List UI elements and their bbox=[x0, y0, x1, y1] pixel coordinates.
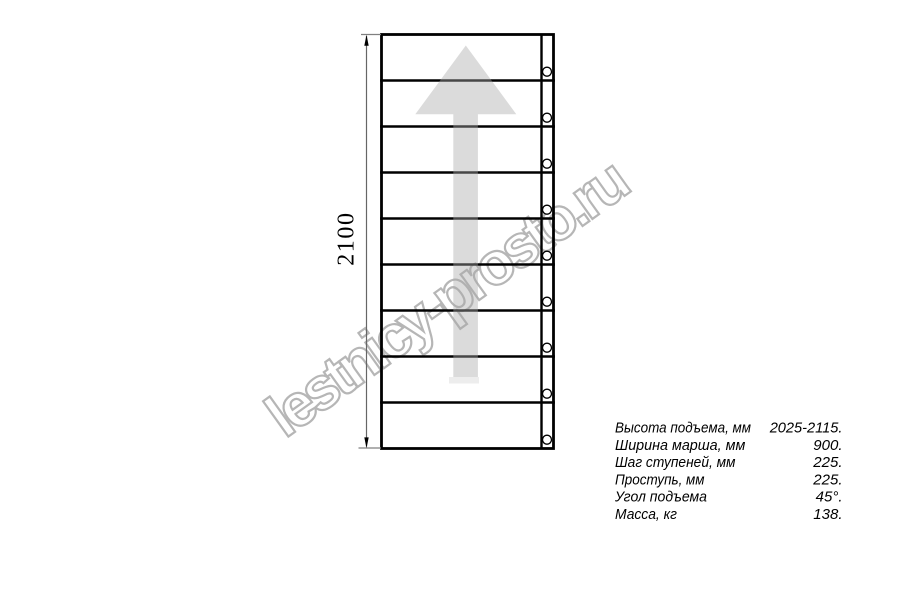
svg-text:Проступь, мм: Проступь, мм bbox=[615, 471, 705, 488]
svg-text:Высота подъема, мм: Высота подъема, мм bbox=[615, 420, 751, 437]
svg-text:45°.: 45°. bbox=[816, 489, 843, 506]
svg-text:Угол подъема: Угол подъема bbox=[614, 489, 707, 506]
svg-text:2100: 2100 bbox=[334, 211, 360, 265]
svg-text:2025-2115.: 2025-2115. bbox=[769, 420, 843, 437]
svg-text:900.: 900. bbox=[813, 437, 842, 454]
svg-text:lestnicy-prosto.ru: lestnicy-prosto.ru bbox=[254, 147, 639, 449]
svg-text:225.: 225. bbox=[812, 471, 842, 488]
svg-text:Масса, кг: Масса, кг bbox=[615, 506, 678, 523]
svg-text:Шаг ступеней, мм: Шаг ступеней, мм bbox=[615, 454, 736, 471]
svg-text:Ширина марша, мм: Ширина марша, мм bbox=[615, 437, 745, 454]
svg-text:138.: 138. bbox=[813, 506, 842, 523]
svg-text:225.: 225. bbox=[812, 454, 842, 471]
